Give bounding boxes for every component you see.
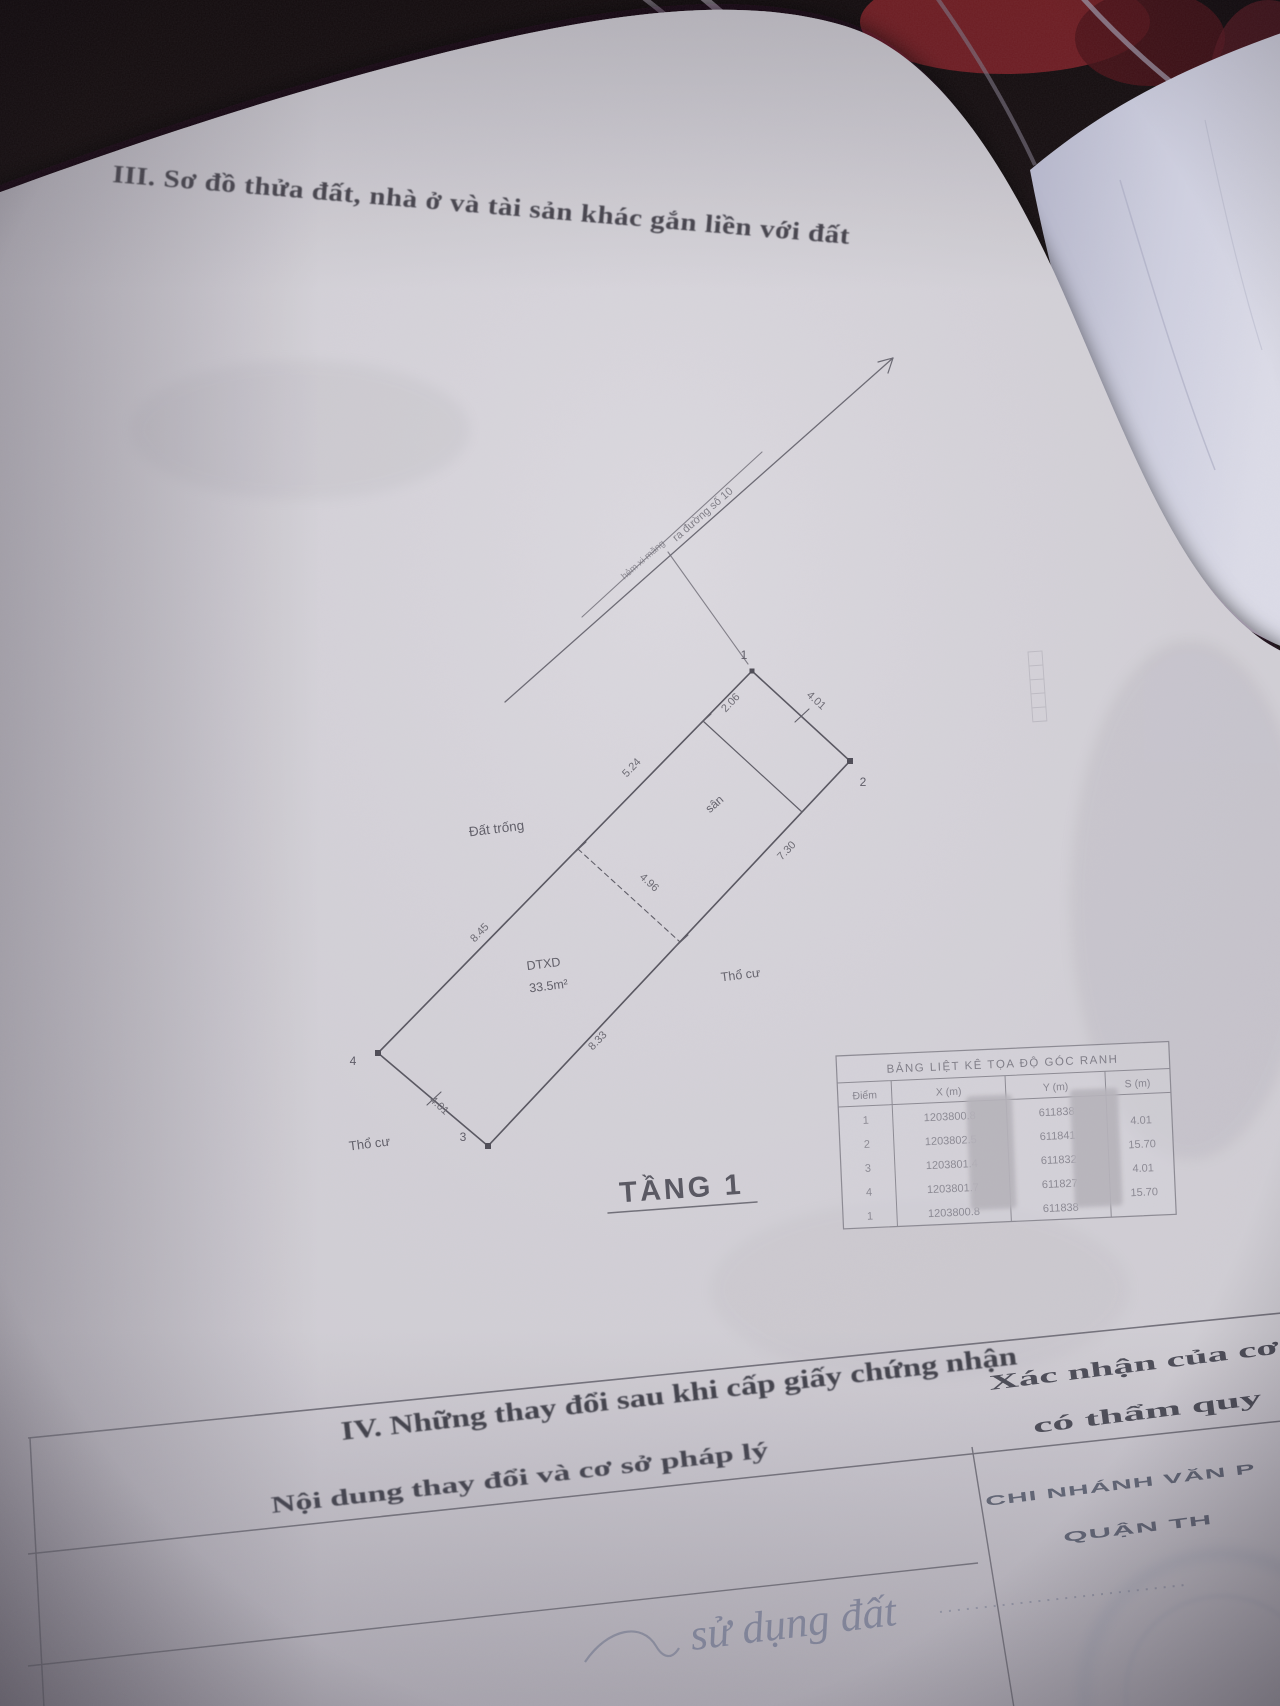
- photo-of-land-certificate: III. Sơ đồ thửa đất, nhà ở và tài sản kh…: [0, 0, 1280, 1706]
- photo-vignette-overlay: [0, 0, 1280, 1706]
- certificate-photo-canvas: III. Sơ đồ thửa đất, nhà ở và tài sản kh…: [0, 0, 1280, 1706]
